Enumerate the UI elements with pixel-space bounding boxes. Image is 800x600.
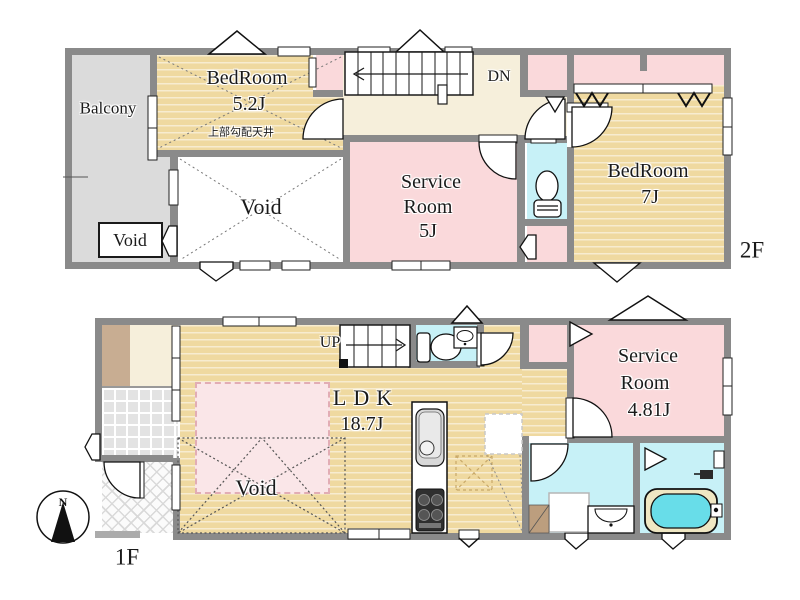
bathtub-icon <box>645 489 722 533</box>
refrigerator-space <box>485 414 522 454</box>
kitchen-counter <box>412 402 447 533</box>
door-arc-bedroom7 <box>572 107 612 147</box>
stove-icon <box>416 489 444 531</box>
stairs-up-icon <box>339 325 410 368</box>
door-arc-toilet1f <box>481 333 513 365</box>
kitchen-sink-icon <box>416 409 444 466</box>
bedroom52-ceiling-note: 上部勾配天井 <box>208 128 274 139</box>
door-arc-washroom <box>531 444 568 481</box>
ldk-name: LDK <box>333 387 399 409</box>
kitchen-guides <box>487 455 524 531</box>
service481-size: 4.81J <box>628 400 671 420</box>
stairs-down-icon <box>345 52 473 104</box>
bedroom52-name: BedRoom <box>206 68 287 88</box>
service481-line1: Service <box>618 346 678 366</box>
table-space <box>456 456 492 490</box>
floor2-label: 2F <box>740 239 764 262</box>
floor1-label: 1F <box>115 546 139 569</box>
service5-line2: Room <box>404 197 453 217</box>
balcony-label: Balcony <box>80 100 137 117</box>
walls <box>65 48 731 540</box>
bedroom7-name: BedRoom <box>607 161 688 181</box>
bedroom52-size: 5.2J <box>233 94 266 114</box>
stairs-down-label: DN <box>487 69 510 85</box>
service5-line1: Service <box>401 172 461 192</box>
porch-step <box>95 531 140 538</box>
void-1f-label: Void <box>235 477 276 499</box>
compass-north-label: N <box>59 495 68 509</box>
compass-icon: N <box>37 491 89 543</box>
hand-wash-sink-icon <box>454 327 477 348</box>
shower-fixture-icon <box>694 451 724 479</box>
bedroom7-size: 7J <box>641 187 659 207</box>
plan-linework: N <box>0 0 800 600</box>
ldk-size: 18.7J <box>341 414 384 434</box>
void-small-label: Void <box>113 231 147 249</box>
floor-plan: N Balcony BedRoom 5.2J 上部勾配天井 Void Void … <box>0 0 800 600</box>
void-large-label: Void <box>240 196 281 218</box>
service5-size: 5J <box>419 221 437 241</box>
service481-line2: Room <box>621 373 670 393</box>
door-arc-entrance <box>104 462 140 498</box>
vanity-sink-icon <box>588 506 634 533</box>
door-arc-service5 <box>479 142 516 179</box>
shoe-room-divider <box>102 386 178 388</box>
stairs-up-label: UP <box>320 335 340 351</box>
toilet-icon-2f <box>534 171 561 217</box>
washing-machine-space <box>549 493 589 532</box>
door-arc-bedroom52 <box>303 99 343 139</box>
door-arc-service481 <box>573 398 612 437</box>
